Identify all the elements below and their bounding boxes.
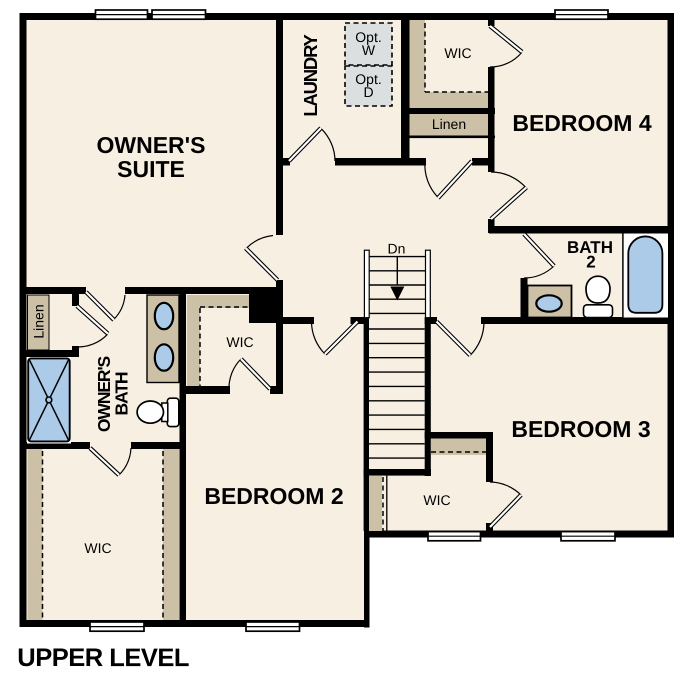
svg-text:BEDROOM 3: BEDROOM 3 xyxy=(511,416,650,442)
svg-text:WIC: WIC xyxy=(226,334,253,350)
svg-text:OWNER'S: OWNER'S xyxy=(97,132,206,158)
svg-text:WIC: WIC xyxy=(444,45,471,61)
svg-text:BEDROOM 2: BEDROOM 2 xyxy=(204,483,343,509)
svg-text:LAUNDRY: LAUNDRY xyxy=(300,33,321,116)
svg-text:Dn: Dn xyxy=(388,240,406,256)
svg-text:SUITE: SUITE xyxy=(117,156,185,182)
svg-text:2: 2 xyxy=(586,252,595,271)
svg-text:D: D xyxy=(363,84,373,100)
svg-text:WIC: WIC xyxy=(423,492,450,508)
svg-text:BATH: BATH xyxy=(112,372,132,415)
svg-text:Linen: Linen xyxy=(432,116,466,132)
svg-text:BEDROOM 4: BEDROOM 4 xyxy=(512,110,652,136)
svg-text:UPPER LEVEL: UPPER LEVEL xyxy=(17,644,189,672)
svg-text:WIC: WIC xyxy=(84,540,111,556)
svg-text:Linen: Linen xyxy=(31,304,47,338)
svg-text:W: W xyxy=(362,42,376,58)
